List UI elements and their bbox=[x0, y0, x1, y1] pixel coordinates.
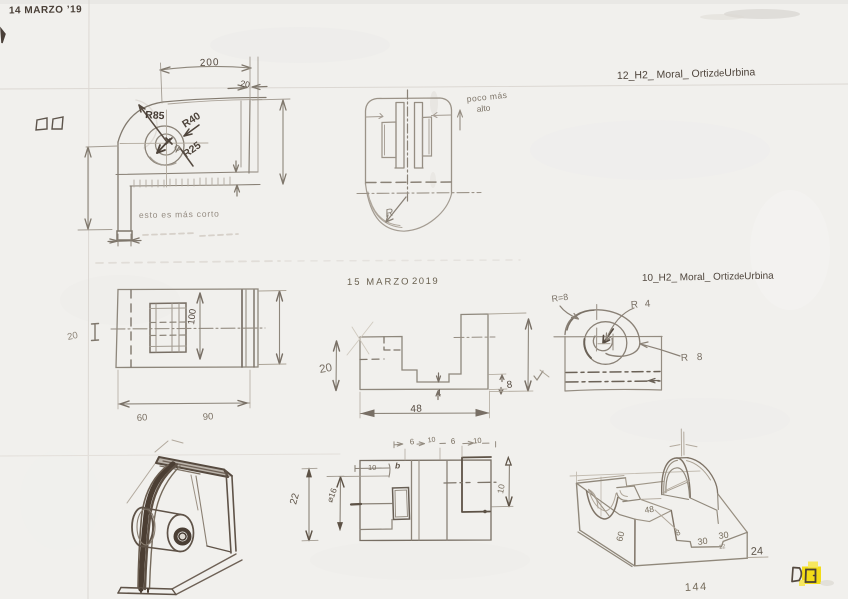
svg-text:14 MARZO ’19: 14 MARZO ’19 bbox=[9, 4, 82, 16]
svg-text:30: 30 bbox=[697, 536, 708, 547]
svg-text:10: 10 bbox=[473, 436, 482, 446]
svg-text:24: 24 bbox=[751, 545, 764, 558]
svg-text:100: 100 bbox=[186, 308, 199, 325]
svg-text:10: 10 bbox=[368, 463, 376, 472]
svg-text:2019: 2019 bbox=[412, 276, 439, 287]
svg-text:144: 144 bbox=[685, 581, 708, 594]
svg-text:10: 10 bbox=[427, 436, 436, 444]
svg-text:15 MARZO: 15 MARZO bbox=[347, 276, 411, 288]
svg-text:20: 20 bbox=[240, 78, 251, 90]
svg-text:90: 90 bbox=[202, 411, 213, 423]
svg-text:10: 10 bbox=[495, 483, 507, 494]
svg-text:48: 48 bbox=[410, 404, 422, 415]
svg-text:200: 200 bbox=[200, 57, 220, 69]
svg-text:alto: alto bbox=[476, 103, 491, 114]
svg-text:R 8: R 8 bbox=[681, 352, 706, 364]
svg-text:20: 20 bbox=[318, 362, 333, 376]
svg-text:10_H2_ Moral_ OrtizdeUrbina: 10_H2_ Moral_ OrtizdeUrbina bbox=[642, 271, 774, 284]
svg-text:R85: R85 bbox=[145, 109, 165, 122]
svg-text:R 4: R 4 bbox=[630, 299, 652, 311]
svg-text:48: 48 bbox=[644, 504, 655, 515]
svg-text:b: b bbox=[395, 461, 400, 471]
svg-text:60: 60 bbox=[136, 412, 147, 424]
svg-text:30: 30 bbox=[718, 530, 729, 541]
svg-text:20: 20 bbox=[66, 330, 79, 343]
svg-text:esto es más corto: esto es más corto bbox=[139, 209, 220, 220]
